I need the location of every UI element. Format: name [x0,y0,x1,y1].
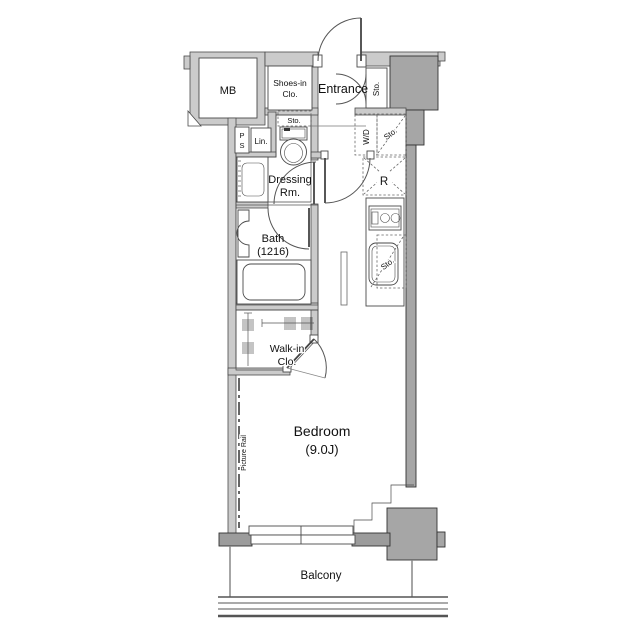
room-label-bedroom-1: Bedroom [294,423,351,439]
room-label-walkin-1: Walk-in [270,343,305,355]
corridor-doorframe-left [321,151,328,159]
room-label-dressing-2: Rm. [280,187,300,199]
label-picture-rail: Picture Rail [241,435,248,471]
label-ps-p: P [239,131,244,140]
window-panel-2 [251,535,355,544]
label-linen: Lin. [255,137,268,146]
top-wall-left [265,52,318,66]
room-label-shoes-1: Shoes-in [273,78,307,88]
walls [184,52,445,560]
kitchen [366,198,406,306]
washbasin [237,157,268,202]
floorplan-page: MB Shoes-in Clo. Entrance Sto. P S Lin. … [0,0,640,639]
room-label-mb: MB [220,85,237,97]
top-wall-notch [438,52,445,61]
label-ps-s: S [239,141,244,150]
walkin-door-arc [314,339,326,378]
washbasin-counter [237,157,268,202]
stove [369,206,401,230]
room-label-entrance: Entrance [318,82,368,96]
kitchen-partition-wall [341,252,347,305]
label-washer-dryer: W/D [362,129,371,145]
walkin-bottom-wall [228,368,290,375]
toilet-flush-handle [284,128,290,131]
entrance-door-arc [318,18,361,61]
balcony-railing [218,597,448,616]
room-label-shoes-2: Clo. [282,89,297,99]
label-fridge: R [380,176,388,188]
stove-outer [369,206,401,230]
floorplan-drawing: MB Shoes-in Clo. Entrance Sto. P S Lin. … [0,0,640,639]
wd-nook-top-wall [355,108,406,115]
pillar-bottom-right [387,508,437,560]
hanger-hatch-left [242,313,254,366]
bath-counter [237,210,249,257]
label-toilet-storage: Sto. [287,116,300,125]
right-wall [406,145,416,487]
corridor-doorframe-right [367,151,374,159]
bathtub [243,264,305,300]
room-label-bath-1: Bath [262,233,285,245]
window-wall-right [352,533,390,546]
room-label-dressing-1: Dressing [268,174,311,186]
pillar-nub [437,532,445,547]
window-wall-left [219,533,252,546]
pillar-top-right [390,56,438,110]
hanger-hatch-top [262,317,314,330]
room-label-balcony: Balcony [301,570,342,582]
walkin-door-swing-base [287,368,325,378]
shoes-closet-box [268,66,312,110]
pillar-top-stem [406,110,424,145]
wall-bump-left [184,56,190,69]
label-entrance-storage: Sto. [372,82,381,96]
room-label-walkin-2: Clo. [278,356,297,368]
room-label-bath-2: (1216) [257,246,289,258]
left-wall [228,118,236,535]
room-label-bedroom-2: (9.0J) [305,442,338,457]
label-hall-storage: Sto. [382,126,399,142]
